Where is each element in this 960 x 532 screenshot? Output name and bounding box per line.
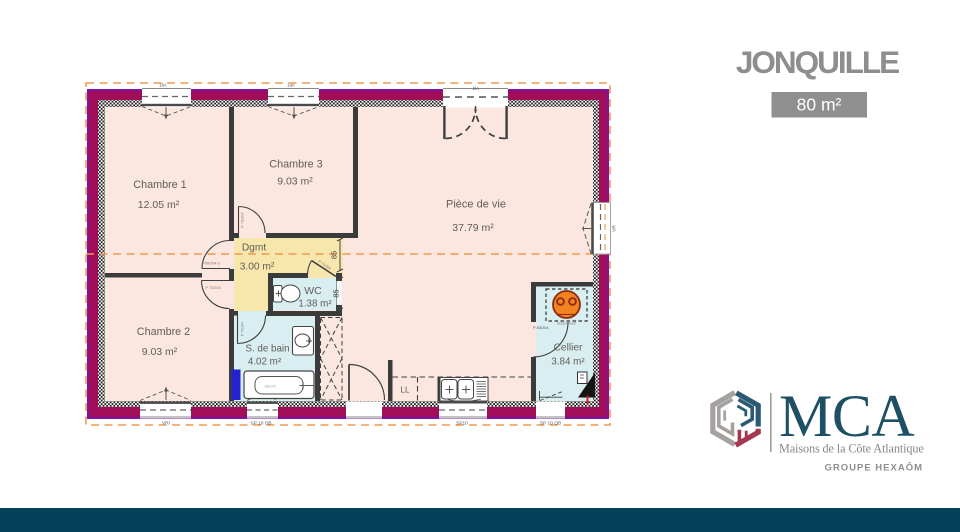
svg-text:Cellier: Cellier (554, 343, 583, 354)
svg-text:160x75: 160x75 (264, 385, 275, 389)
svg-text:depart avant: depart avant (557, 322, 576, 326)
svg-text:85: 85 (332, 289, 341, 297)
svg-text:1aA: 1aA (287, 83, 295, 88)
svg-text:WC: WC (304, 285, 322, 297)
svg-text:Maisons de la Côte Atlantique: Maisons de la Côte Atlantique (779, 442, 924, 456)
svg-text:P 73/204: P 73/204 (241, 212, 245, 227)
svg-text:4.02 m²: 4.02 m² (248, 357, 282, 368)
svg-text:P 73/204: P 73/204 (241, 322, 245, 336)
svg-text:P 73/204: P 73/204 (205, 286, 220, 290)
svg-text:9.03 m²: 9.03 m² (142, 346, 178, 358)
svg-text:Chambre 2: Chambre 2 (137, 326, 190, 338)
svg-text:P90/204 d: P90/204 d (202, 262, 219, 266)
svg-text:JONQUILLE: JONQUILLE (736, 44, 899, 80)
svg-text:S. de bain: S. de bain (245, 344, 289, 355)
svg-text:GROUPE HEXAÔM: GROUPE HEXAÔM (824, 462, 923, 474)
svg-text:Dgmt: Dgmt (242, 243, 267, 254)
svg-text:P 83/204: P 83/204 (533, 325, 549, 330)
svg-text:VRI: VRI (162, 421, 170, 427)
svg-text:9.03 m²: 9.03 m² (277, 176, 313, 188)
svg-text:blA: blA (473, 86, 479, 91)
svg-text:MCA: MCA (779, 383, 914, 449)
svg-text:Chambre 3: Chambre 3 (269, 159, 322, 171)
svg-text:1.38 m²: 1.38 m² (298, 299, 332, 310)
svg-text:SP10: SP10 (456, 421, 468, 427)
svg-text:12.05 m²: 12.05 m² (138, 199, 180, 211)
svg-text:80 m²: 80 m² (797, 95, 842, 115)
svg-text:SP 10 OB: SP 10 OB (540, 421, 561, 427)
svg-text:37.79 m²: 37.79 m² (452, 222, 494, 234)
svg-text:VR: VR (612, 225, 618, 232)
svg-text:LL: LL (401, 386, 410, 395)
svg-text:Pièce de vie: Pièce de vie (446, 199, 506, 211)
svg-text:3.00 m²: 3.00 m² (240, 262, 275, 273)
svg-text:85: 85 (330, 251, 339, 259)
svg-text:SP 10 OB: SP 10 OB (250, 421, 271, 427)
svg-text:Chambre 1: Chambre 1 (133, 179, 186, 191)
svg-text:3.84 m²: 3.84 m² (551, 357, 585, 368)
svg-text:1bA: 1bA (159, 83, 167, 88)
